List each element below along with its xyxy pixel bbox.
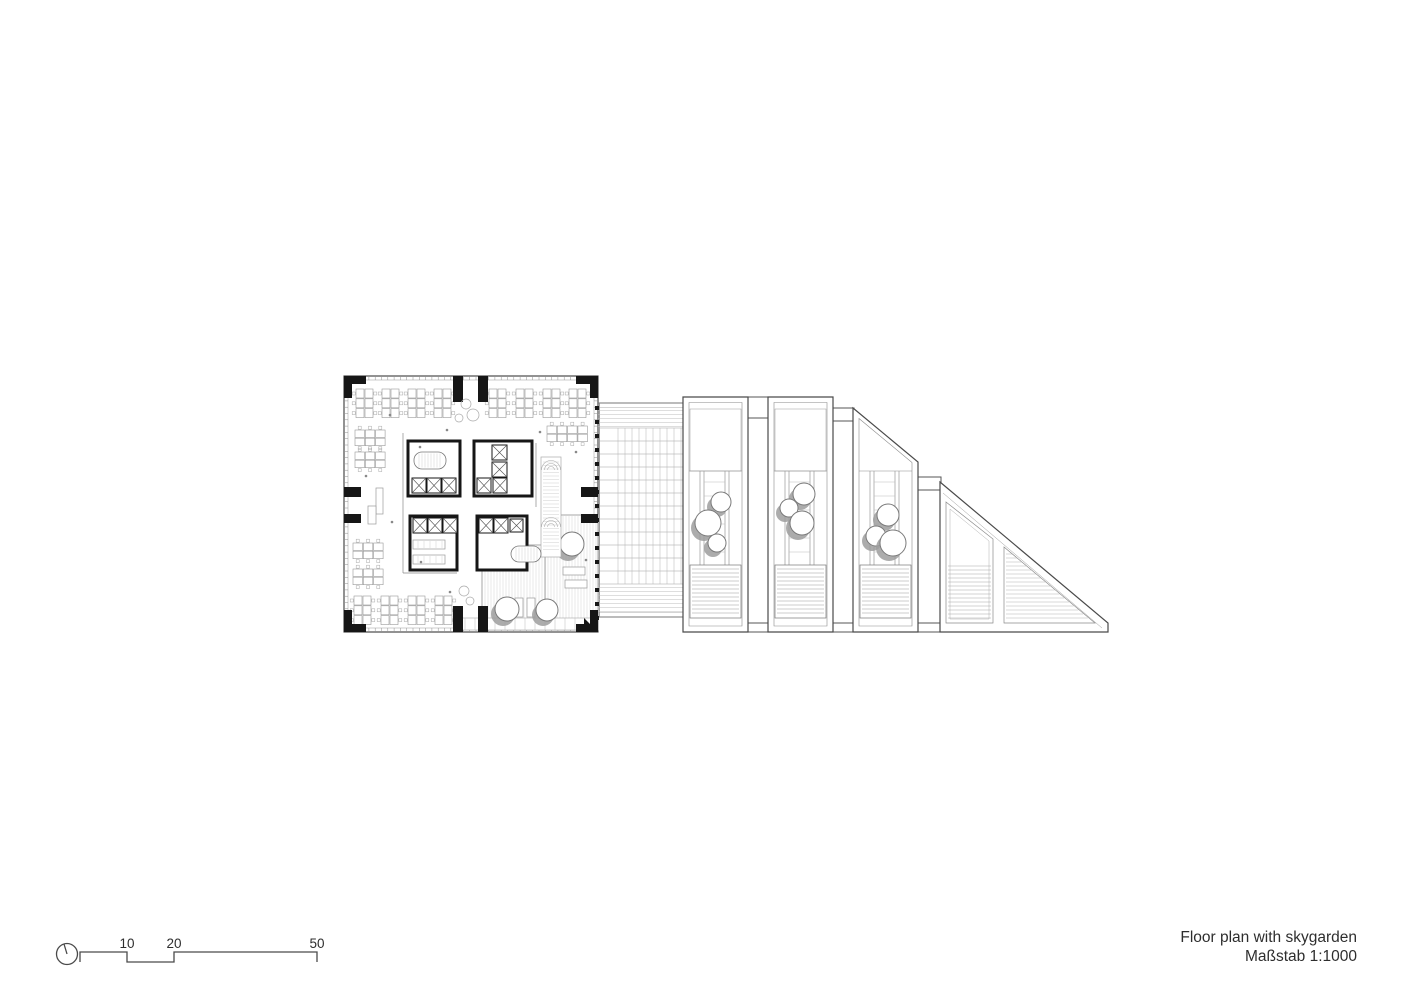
plan-dot — [419, 446, 422, 449]
module-connector — [748, 397, 769, 418]
tree — [536, 599, 558, 621]
drawing-title: Floor plan with skygarden — [1180, 929, 1357, 948]
wall-stub — [453, 376, 463, 402]
tree — [695, 510, 721, 536]
tree — [708, 534, 726, 552]
module-connector — [833, 623, 854, 632]
plan-dot — [420, 561, 423, 564]
wall-stub — [478, 376, 488, 402]
table — [376, 488, 383, 514]
scale-label-10: 10 — [119, 936, 134, 951]
corner-wall — [590, 376, 598, 398]
facade-column — [595, 462, 599, 466]
tree — [495, 597, 519, 621]
skygarden-module-2 — [768, 397, 833, 632]
facade-column — [595, 574, 599, 578]
skygarden-module-3 — [853, 408, 918, 632]
lounger — [565, 580, 587, 588]
tree — [711, 492, 731, 512]
plan-dot — [446, 429, 449, 432]
floor-plan-drawing — [0, 0, 1414, 1000]
facade-column — [595, 406, 599, 410]
scale-label-50: 50 — [309, 936, 324, 951]
facade-column — [595, 560, 599, 564]
facade-column — [595, 504, 599, 508]
corner-wall — [344, 376, 352, 398]
facade-column — [595, 490, 599, 494]
tree — [560, 532, 584, 556]
lounger — [563, 567, 585, 575]
table — [368, 506, 376, 524]
facade-column — [595, 616, 599, 620]
scale-bar: 10 20 50 — [30, 928, 340, 973]
wall-stub — [478, 606, 488, 632]
skygarden-module-4 — [940, 482, 1108, 632]
tree — [877, 504, 899, 526]
facade-column — [595, 448, 599, 452]
drawing-scale: Maßstab 1:1000 — [1180, 948, 1357, 967]
module-connector — [748, 623, 769, 632]
facade-column — [595, 476, 599, 480]
wall-stub — [344, 487, 361, 497]
scale-bar-line — [80, 952, 317, 962]
module-connector — [918, 477, 941, 490]
spiral-ramp — [541, 457, 561, 557]
plan-dot — [365, 475, 368, 478]
wall-stub — [453, 606, 463, 632]
page: { "title_block": { "line1": "Floor plan … — [0, 0, 1414, 1000]
facade-column — [595, 532, 599, 536]
plan-dot — [585, 559, 588, 562]
facade-column — [595, 434, 599, 438]
facade-column — [595, 518, 599, 522]
scale-label-20: 20 — [166, 936, 181, 951]
atrium-link — [595, 403, 683, 620]
facade-column — [595, 588, 599, 592]
north-indicator-icon — [57, 944, 78, 965]
plan-dot — [449, 591, 452, 594]
facade-column — [595, 420, 599, 424]
corner-wall — [344, 610, 352, 632]
tree — [793, 483, 815, 505]
facade-column — [595, 602, 599, 606]
stair — [511, 546, 541, 562]
inner-triangle — [1004, 547, 1095, 623]
tree — [880, 530, 906, 556]
floor-plan — [344, 376, 598, 632]
skygarden-modules — [683, 397, 1108, 632]
plan-dot — [389, 414, 392, 417]
module-connector — [833, 408, 854, 421]
facade-column — [595, 546, 599, 550]
plan-dot — [391, 521, 394, 524]
module-connector — [918, 623, 940, 632]
tree — [790, 511, 814, 535]
title-block: Floor plan with skygarden Maßstab 1:1000 — [1180, 929, 1357, 966]
wall-stub — [344, 514, 361, 523]
plan-dot — [575, 451, 578, 454]
skygarden-module-1 — [683, 397, 748, 632]
plan-dot — [539, 431, 542, 434]
